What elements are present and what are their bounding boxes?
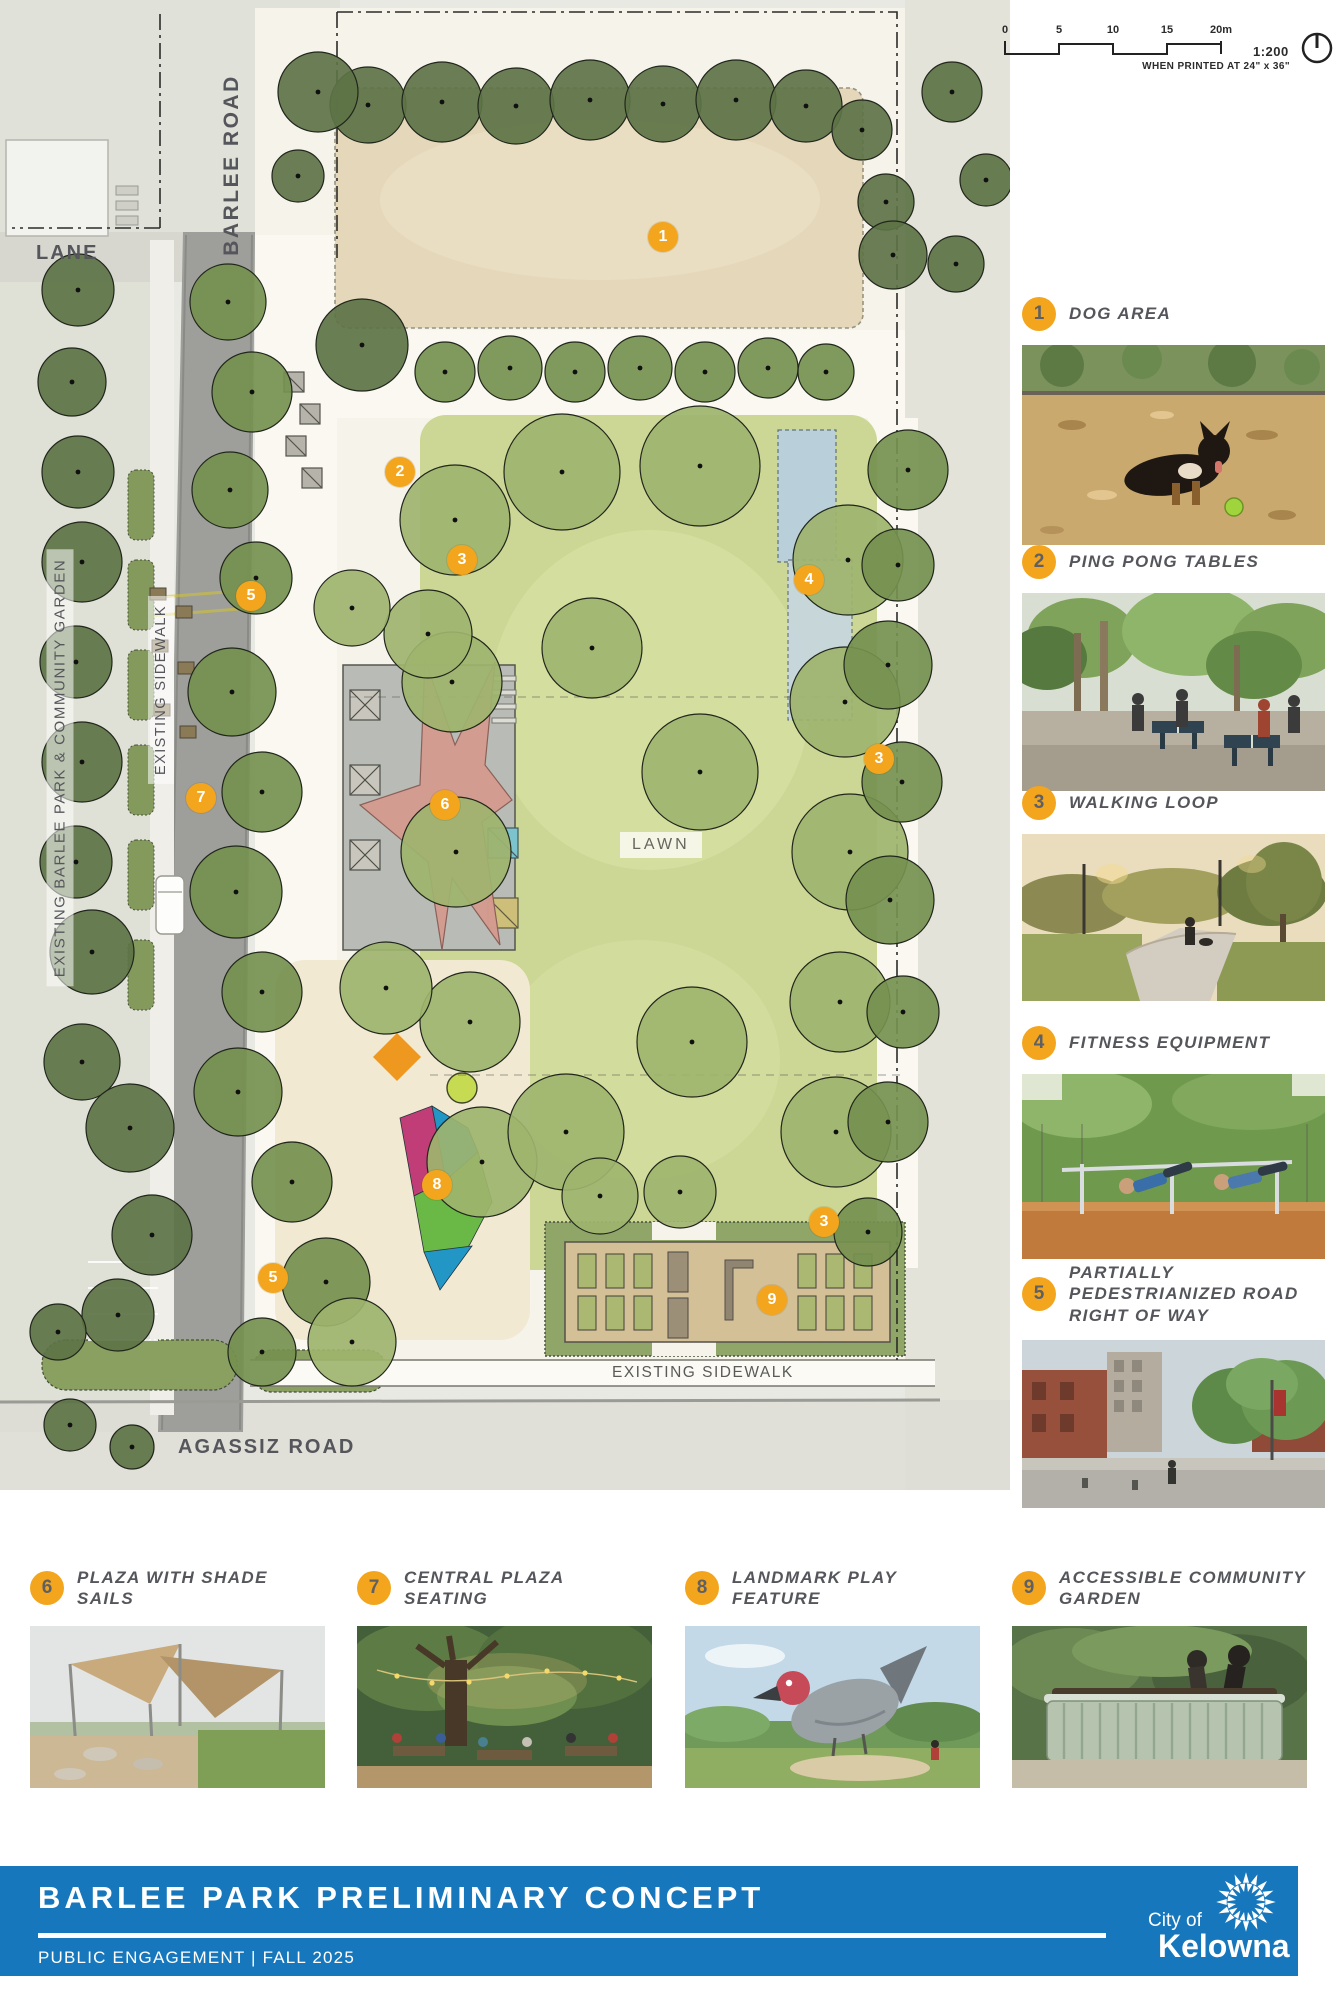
legend-number-badge: 9 bbox=[1012, 1571, 1046, 1605]
legend-label: WALKING LOOP bbox=[1069, 792, 1219, 813]
scale-tick: 20m bbox=[1210, 24, 1232, 36]
photo-plaza-seating bbox=[357, 1626, 652, 1788]
photo-ping-pong bbox=[1022, 593, 1325, 791]
city-of-kelowna-logo: City of Kelowna bbox=[1140, 1866, 1298, 1976]
legend-number-badge: 2 bbox=[1022, 545, 1056, 579]
legend-label: DOG AREA bbox=[1069, 303, 1171, 324]
photo-pedestrianized-road bbox=[1022, 1340, 1325, 1508]
poster-title: BARLEE PARK PRELIMINARY CONCEPT bbox=[38, 1880, 764, 1916]
legend-label: PARTIALLY PEDESTRIANIZED ROAD RIGHT OF W… bbox=[1069, 1262, 1325, 1326]
photo-community-garden bbox=[1012, 1626, 1307, 1788]
kelowna-sun-icon bbox=[1210, 1868, 1282, 1936]
footer-banner: BARLEE PARK PRELIMINARY CONCEPT PUBLIC E… bbox=[0, 1866, 1298, 1976]
photo-dog-area bbox=[1022, 345, 1325, 545]
photo-fitness bbox=[1022, 1074, 1325, 1259]
concept-poster: BARLEE ROAD LANE EXISTING BARLEE PARK & … bbox=[0, 0, 1333, 2000]
site-plan-drawing bbox=[0, 0, 1010, 1490]
scale-tick: 10 bbox=[1107, 24, 1119, 36]
legend-label: PING PONG TABLES bbox=[1069, 551, 1259, 572]
legend-number-badge: 8 bbox=[685, 1571, 719, 1605]
site-plan: BARLEE ROAD LANE EXISTING BARLEE PARK & … bbox=[0, 0, 1010, 1490]
banner-divider bbox=[38, 1933, 1106, 1938]
logo-kelowna: Kelowna bbox=[1158, 1928, 1290, 1965]
legend-item-shade-sails: 6 PLAZA WITH SHADE SAILS bbox=[30, 1560, 325, 1788]
photo-play-feature bbox=[685, 1626, 980, 1788]
legend-label: LANDMARK PLAY FEATURE bbox=[732, 1567, 980, 1610]
legend-number-badge: 7 bbox=[357, 1571, 391, 1605]
legend-item-walking-loop: 3 WALKING LOOP bbox=[1022, 786, 1325, 1001]
legend-label: ACCESSIBLE COMMUNITY GARDEN bbox=[1059, 1567, 1307, 1610]
scale-note: WHEN PRINTED AT 24" x 36" bbox=[1003, 61, 1290, 72]
photo-shade-sails bbox=[30, 1626, 325, 1788]
legend-item-fitness: 4 FITNESS EQUIPMENT bbox=[1022, 1026, 1325, 1259]
scale-ratio: 1:200 bbox=[1253, 44, 1289, 59]
scale-bar-graphic bbox=[1003, 37, 1227, 59]
legend-item-play-feature: 8 LANDMARK PLAY FEATURE bbox=[685, 1560, 980, 1788]
legend-number-badge: 1 bbox=[1022, 297, 1056, 331]
north-arrow-icon bbox=[1299, 30, 1333, 66]
photo-walking-loop bbox=[1022, 834, 1325, 1001]
legend-label: CENTRAL PLAZA SEATING bbox=[404, 1567, 652, 1610]
scale-bar: 0 5 10 15 20m 1:200 WHEN PRINTED AT 24" … bbox=[1003, 24, 1333, 88]
scale-tick: 0 bbox=[1002, 24, 1008, 36]
scale-tick: 15 bbox=[1161, 24, 1173, 36]
legend-item-ping-pong: 2 PING PONG TABLES bbox=[1022, 545, 1325, 791]
legend-label: FITNESS EQUIPMENT bbox=[1069, 1032, 1270, 1053]
poster-subtitle: PUBLIC ENGAGEMENT | FALL 2025 bbox=[38, 1948, 355, 1968]
legend-number-badge: 3 bbox=[1022, 786, 1056, 820]
legend-item-pedestrianized-road: 5 PARTIALLY PEDESTRIANIZED ROAD RIGHT OF… bbox=[1022, 1262, 1325, 1508]
legend-item-community-garden: 9 ACCESSIBLE COMMUNITY GARDEN bbox=[1012, 1560, 1307, 1788]
legend-number-badge: 6 bbox=[30, 1571, 64, 1605]
legend-label: PLAZA WITH SHADE SAILS bbox=[77, 1567, 325, 1610]
scale-tick: 5 bbox=[1056, 24, 1062, 36]
legend-number-badge: 5 bbox=[1022, 1277, 1056, 1311]
legend-number-badge: 4 bbox=[1022, 1026, 1056, 1060]
legend-item-dog-area: 1 DOG AREA bbox=[1022, 297, 1325, 545]
legend-item-plaza-seating: 7 CENTRAL PLAZA SEATING bbox=[357, 1560, 652, 1788]
